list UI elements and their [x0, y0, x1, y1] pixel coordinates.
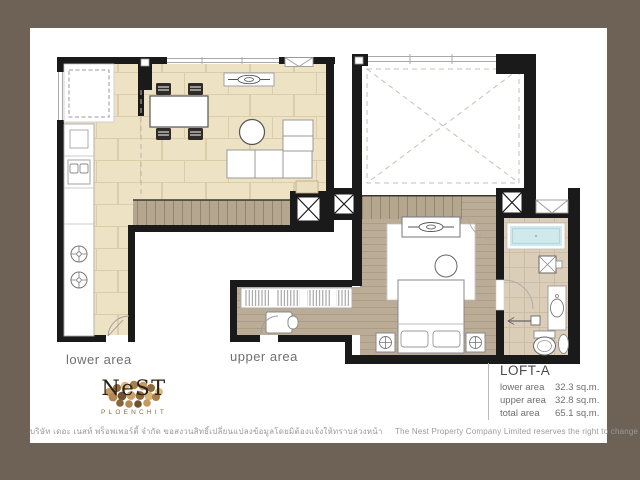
- nightstand-lamp-icon: [466, 333, 485, 352]
- area-row-value: 32.8 sq.m.: [555, 394, 599, 407]
- photo-frame-border: lower area upper area: [0, 0, 640, 480]
- area-row-value: 65.1 sq.m.: [555, 407, 599, 420]
- bathtub-icon: [507, 223, 565, 249]
- vanity-icon: [548, 286, 566, 330]
- wall-niche-upper: [355, 57, 363, 64]
- area-row-label: upper area: [500, 394, 555, 407]
- unit-name: LOFT-A: [500, 363, 620, 378]
- window-lower-top: [167, 57, 279, 64]
- tv-console-icon: [224, 73, 274, 86]
- nest-subtitle: PLOENCHIT: [101, 409, 167, 416]
- unit-area-row: lower area 32.3 sq.m.: [500, 381, 620, 394]
- shaft-x-icon-left: [333, 193, 355, 215]
- shaft-x-icon-mid: [501, 191, 523, 214]
- nest-logo: NeST PLOENCHIT: [76, 362, 192, 421]
- staircase-upper: [362, 195, 462, 219]
- upper-area-label: upper area: [230, 349, 298, 364]
- bed-icon: [398, 280, 464, 353]
- wall-niche: [141, 59, 149, 66]
- nest-logo-art: NeST PLOENCHIT: [76, 362, 192, 416]
- shaft-x-icon: [296, 181, 321, 222]
- area-row-label: total area: [500, 407, 555, 420]
- unit-area-row: upper area 32.8 sq.m.: [500, 394, 620, 407]
- area-row-label: lower area: [500, 381, 555, 394]
- unit-area-row: total area 65.1 sq.m.: [500, 407, 620, 420]
- floorplan-sheet: lower area upper area: [30, 28, 607, 443]
- void-open-to-below: [362, 64, 524, 188]
- disclaimer-thai: บริษัท เดอะ เนสท์ พร็อพเพอร์ตี้ จำกัด ขอ…: [30, 427, 383, 436]
- ac-ledge-icon: [285, 58, 313, 67]
- coffee-table-icon: [240, 120, 265, 145]
- toilet-icon: [534, 331, 556, 355]
- staircase-lower: [133, 200, 293, 225]
- nightstand-lamp-icon: [376, 333, 395, 352]
- kitchen-counter: [64, 124, 94, 336]
- disclaimer-english: The Nest Property Company Limited reserv…: [395, 427, 640, 436]
- window-upper-top: [368, 54, 496, 64]
- unit-info-panel: LOFT-A lower area 32.3 sq.m. upper area …: [488, 363, 620, 420]
- area-row-value: 32.3 sq.m.: [555, 381, 599, 394]
- refrigerator-icon: [64, 64, 114, 122]
- nest-wordmark: NeST: [101, 376, 166, 400]
- ottoman-icon: [435, 255, 457, 277]
- water-heater-icon: [559, 335, 569, 354]
- window-lower-left: [57, 72, 64, 120]
- ac-ledge-icon-upper: [536, 200, 568, 213]
- dining-table-icon: [150, 96, 208, 127]
- bathroom-door-gap: [496, 280, 504, 310]
- pillow-icon: [401, 331, 428, 347]
- headboard-console-icon: [402, 217, 460, 237]
- disclaimer-text: บริษัท เดอะ เนสท์ พร็อพเพอร์ตี้ จำกัด ขอ…: [30, 425, 607, 438]
- wardrobe-icon: [241, 288, 352, 308]
- pillow-icon: [433, 331, 460, 347]
- kitchen-sink-icon: [68, 160, 90, 184]
- bed-area: [376, 217, 485, 353]
